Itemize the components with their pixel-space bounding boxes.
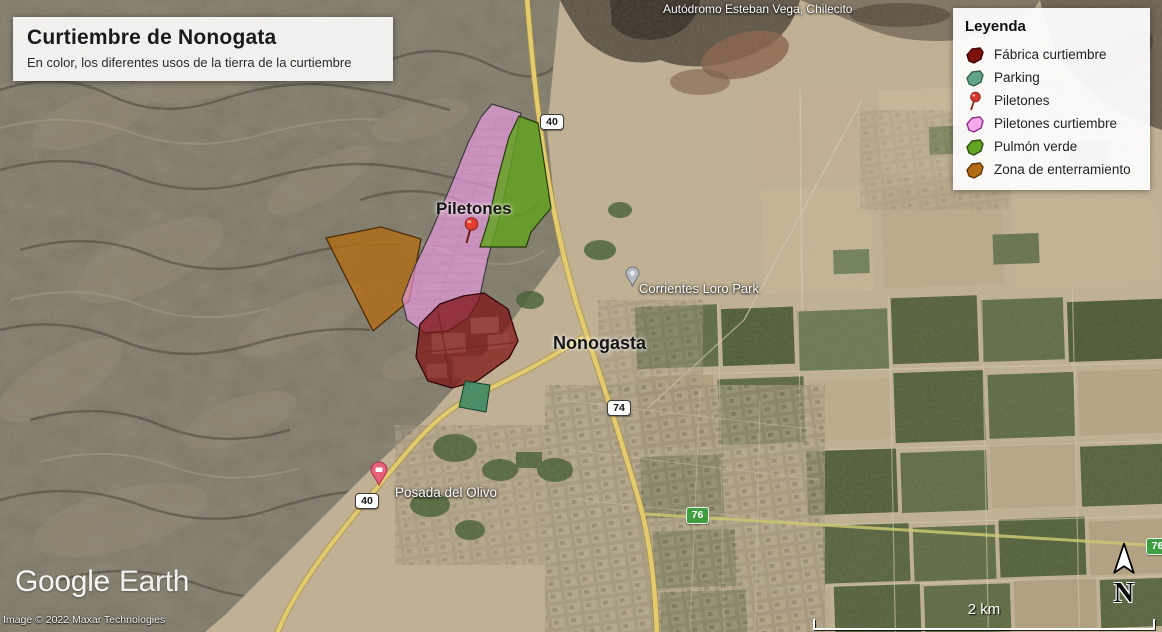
legend-item-fabrica: Fábrica curtiembre: [965, 43, 1142, 66]
legend-item-label: Fábrica curtiembre: [994, 47, 1107, 62]
legend-item-label: Parking: [994, 70, 1040, 85]
route-badge-40-sw: 40: [355, 493, 379, 509]
route-badge-74: 74: [607, 400, 631, 416]
legend-item-pulmon-verde: Pulmón verde: [965, 135, 1142, 158]
polygon-swatch-icon: [965, 69, 985, 87]
legend-item-label: Zona de enterramiento: [994, 162, 1131, 177]
legend: Leyenda Fábrica curtiembre Parking Pilet…: [953, 8, 1150, 190]
legend-title: Leyenda: [965, 18, 1142, 35]
label-autodromo[interactable]: Autódromo Esteban Vega, Chilecito: [663, 2, 852, 16]
label-posada-del-olivo[interactable]: Posada del Olivo: [395, 485, 497, 500]
polygon-swatch-icon: [965, 46, 985, 64]
route-badge-76: 76: [686, 507, 709, 524]
google-earth-logo: GoogleEarth: [15, 565, 189, 599]
legend-item-parking: Parking: [965, 66, 1142, 89]
scale-bar: 2 km: [813, 601, 1155, 630]
polygon-swatch-icon: [965, 138, 985, 156]
legend-item-piletones: Piletones: [965, 89, 1142, 112]
north-arrow-icon: [1109, 542, 1139, 576]
page-subtitle: En color, los diferentes usos de la tier…: [27, 55, 379, 70]
legend-item-label: Pulmón verde: [994, 139, 1077, 154]
label-piletones: Piletones: [436, 199, 512, 219]
page-title: Curtiembre de Nonogata: [27, 26, 379, 50]
logo-google: Google: [15, 565, 110, 598]
legend-item-label: Piletones: [994, 93, 1050, 108]
imagery-copyright: Image © 2022 Maxar Technologies: [3, 614, 165, 626]
pushpin-swatch-icon: [965, 91, 985, 111]
north-arrow-letter: N: [1106, 581, 1142, 607]
route-badge-40-top: 40: [540, 114, 564, 130]
label-nonogasta: Nonogasta: [553, 333, 646, 354]
label-corrientes-loro-park[interactable]: Corrientes Loro Park: [639, 281, 759, 296]
polygon-swatch-icon: [965, 161, 985, 179]
legend-item-piletones-curtiembre: Piletones curtiembre: [965, 112, 1142, 135]
google-earth-viewport: Autódromo Esteban Vega, Chilecito Pileto…: [0, 0, 1162, 632]
scale-bar-label: 2 km: [813, 601, 1155, 618]
north-arrow: N: [1106, 542, 1142, 607]
logo-earth: Earth: [119, 565, 189, 598]
zone-parking[interactable]: [459, 381, 490, 412]
title-box: Curtiembre de Nonogata En color, los dif…: [13, 17, 393, 81]
legend-item-zona-enterramiento: Zona de enterramiento: [965, 158, 1142, 181]
polygon-swatch-icon: [965, 115, 985, 133]
legend-item-label: Piletones curtiembre: [994, 116, 1117, 131]
route-badge-76-edge: 76: [1146, 538, 1162, 555]
scale-bar-line: [813, 619, 1155, 630]
